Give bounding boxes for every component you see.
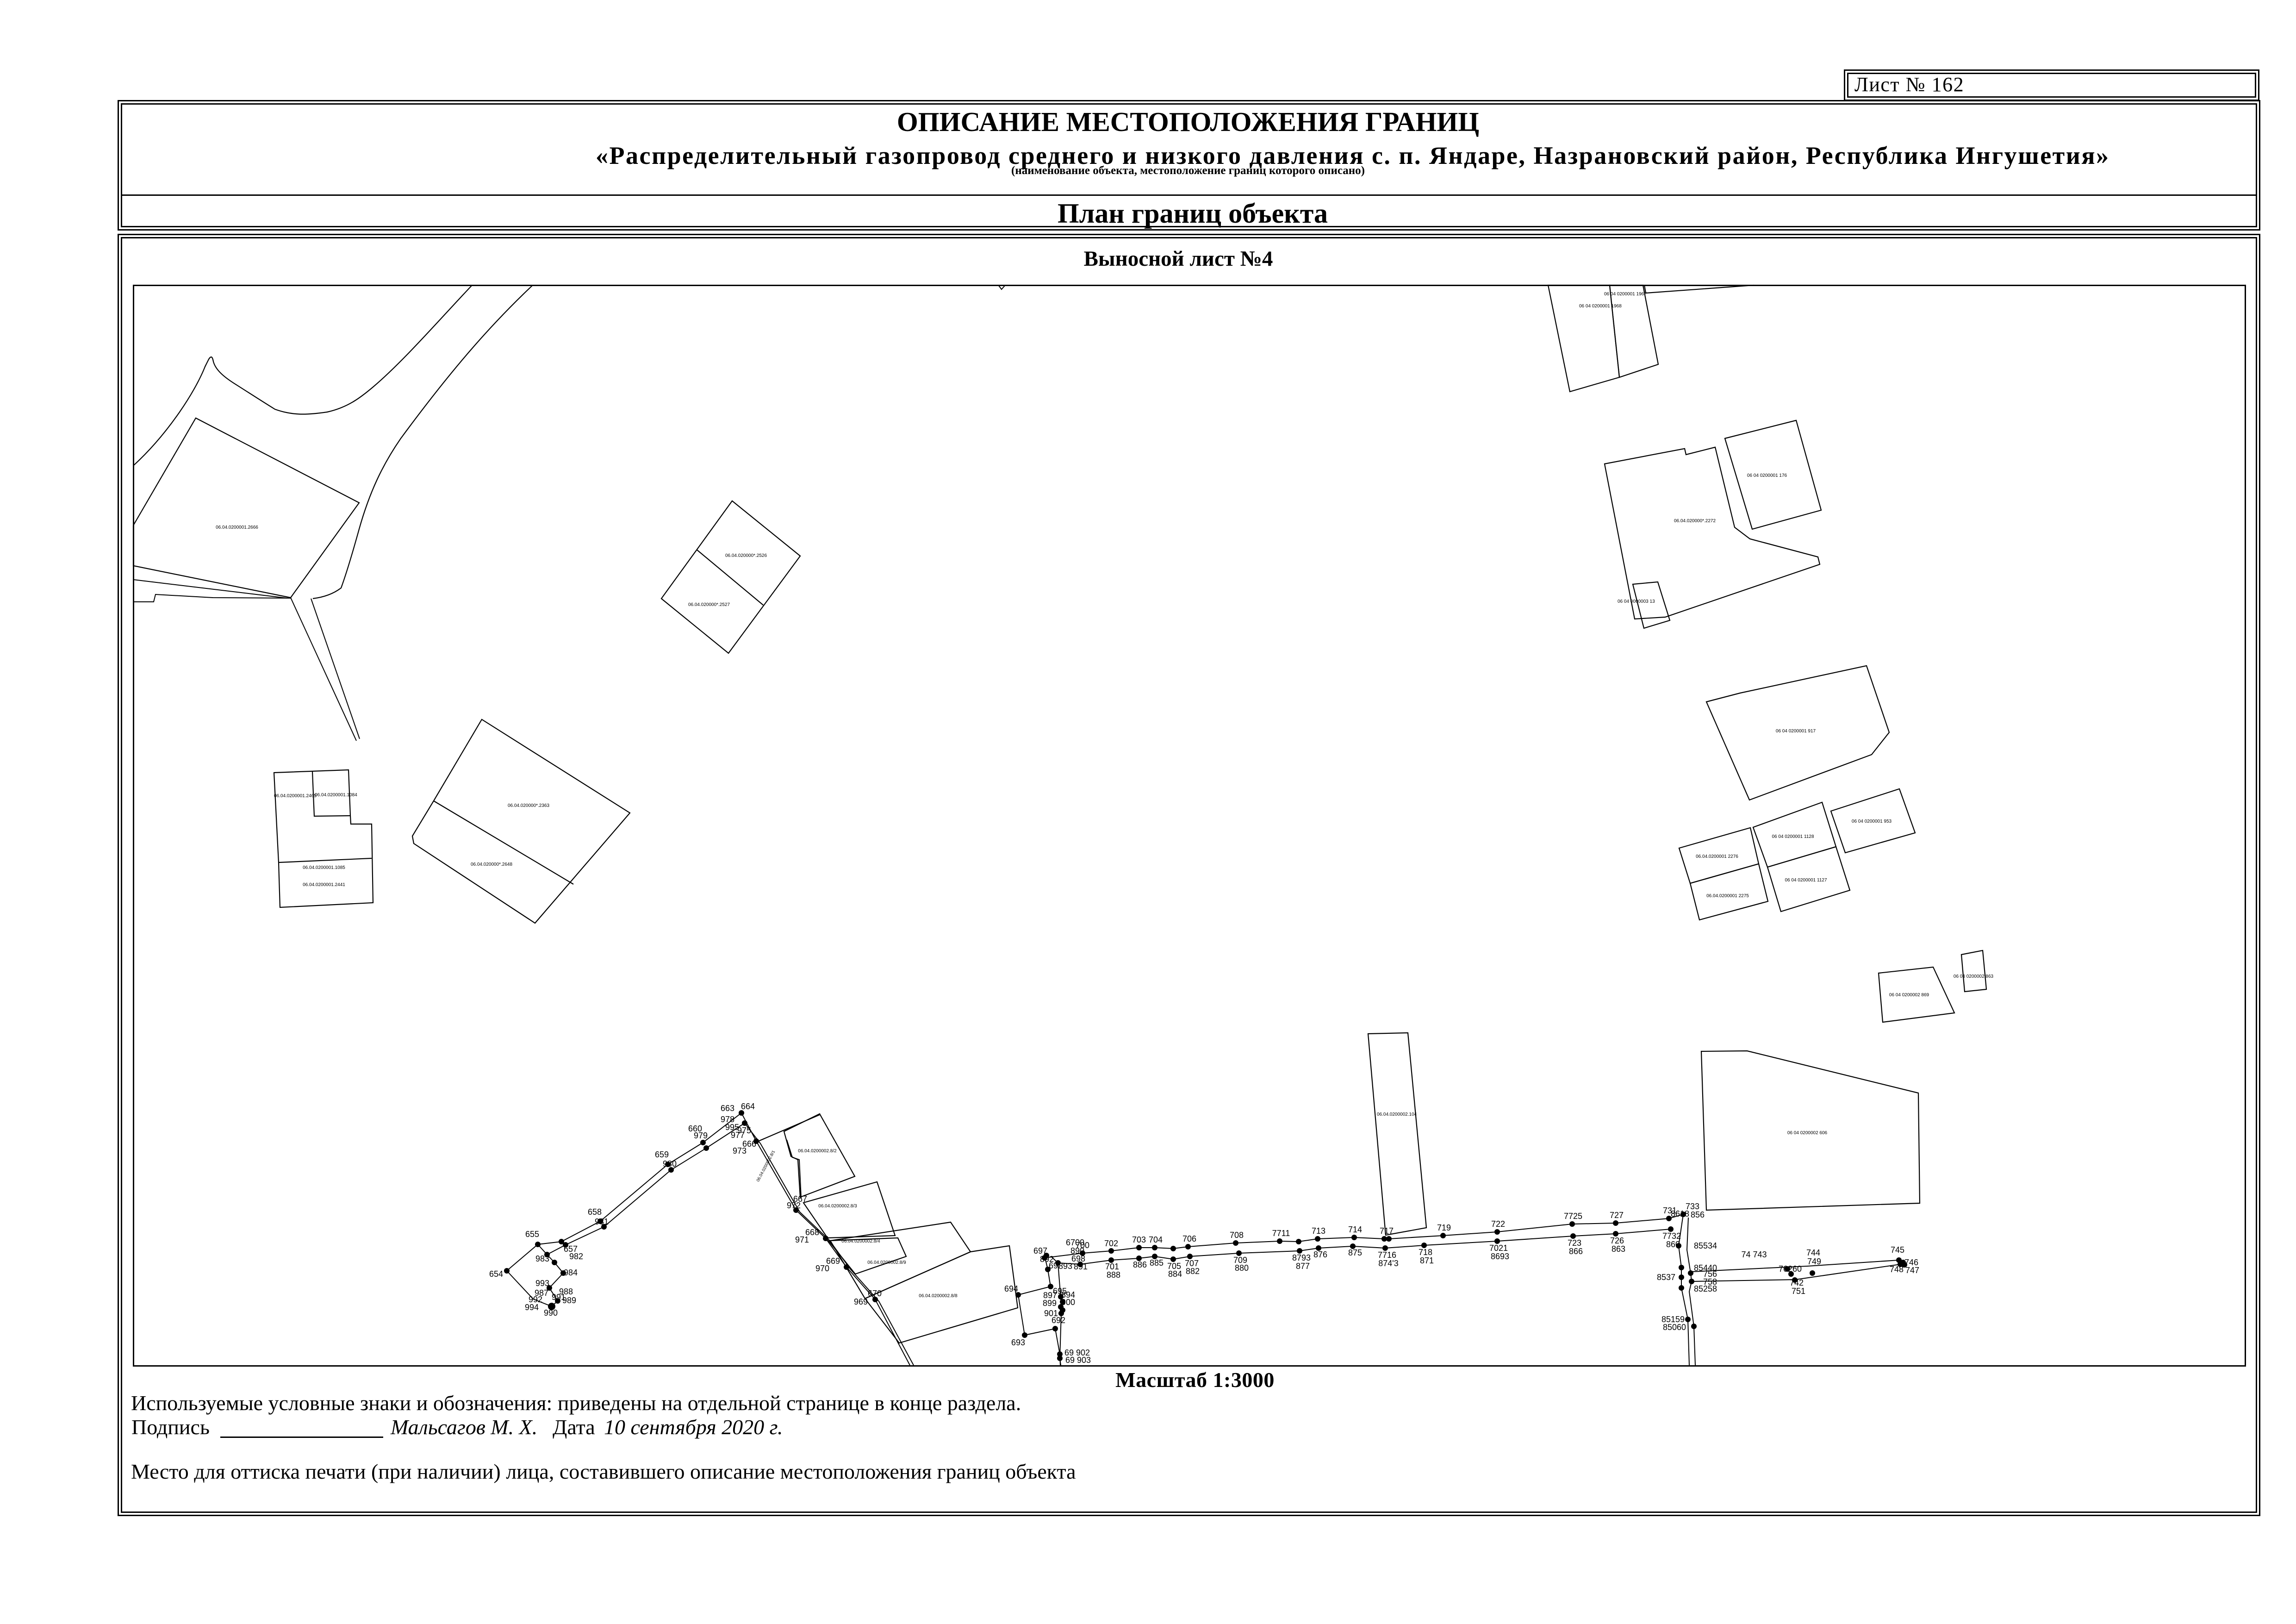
svg-text:722: 722 bbox=[1491, 1219, 1505, 1229]
svg-text:984: 984 bbox=[564, 1268, 578, 1277]
svg-text:744: 744 bbox=[1806, 1248, 1820, 1257]
svg-text:06.04.0200001.1084: 06.04.0200001.1084 bbox=[315, 793, 357, 798]
svg-text:69 903: 69 903 bbox=[1065, 1355, 1091, 1365]
svg-text:06 04 0000003 13: 06 04 0000003 13 bbox=[1618, 599, 1655, 604]
svg-text:751: 751 bbox=[1792, 1287, 1805, 1296]
svg-text:6700: 6700 bbox=[1066, 1238, 1084, 1247]
svg-text:886: 886 bbox=[1133, 1260, 1147, 1269]
svg-text:06.04.0200002.8/4: 06.04.0200002.8/4 bbox=[841, 1239, 880, 1244]
svg-text:06 04 0200001 953: 06 04 0200001 953 bbox=[1852, 819, 1892, 824]
svg-text:717: 717 bbox=[1380, 1226, 1394, 1236]
svg-text:664: 664 bbox=[741, 1102, 755, 1111]
svg-text:7732: 7732 bbox=[1662, 1231, 1681, 1241]
svg-text:748: 748 bbox=[1890, 1265, 1904, 1274]
svg-text:06.04.0200002.8/3: 06.04.0200002.8/3 bbox=[818, 1204, 857, 1209]
svg-text:719: 719 bbox=[1437, 1223, 1451, 1232]
svg-text:06 04 0200001 1127: 06 04 0200001 1127 bbox=[1785, 878, 1827, 883]
svg-text:06.04.0200002.8/9: 06.04.0200002.8/9 bbox=[867, 1260, 906, 1265]
svg-text:891: 891 bbox=[1074, 1262, 1088, 1271]
svg-text:06.04.0200001 2276: 06.04.0200001 2276 bbox=[1696, 854, 1738, 859]
svg-text:8793: 8793 bbox=[1292, 1253, 1311, 1262]
svg-text:06 04 0200001 917: 06 04 0200001 917 bbox=[1776, 729, 1816, 734]
svg-text:663: 663 bbox=[721, 1104, 734, 1113]
svg-text:7725: 7725 bbox=[1564, 1212, 1582, 1221]
svg-text:06.04.0200001.2441: 06.04.0200001.2441 bbox=[303, 882, 345, 887]
svg-text:06.04.0200002.8/2: 06.04.0200002.8/2 bbox=[798, 1149, 837, 1154]
svg-text:983: 983 bbox=[535, 1254, 549, 1263]
svg-text:977: 977 bbox=[731, 1131, 745, 1140]
svg-text:06.04.0200001 2275: 06.04.0200001 2275 bbox=[1706, 893, 1749, 899]
svg-text:866: 866 bbox=[1569, 1247, 1583, 1256]
svg-text:701: 701 bbox=[1105, 1262, 1119, 1271]
svg-text:06.04.020000*.2526: 06.04.020000*.2526 bbox=[725, 553, 767, 558]
svg-text:670: 670 bbox=[868, 1289, 882, 1298]
svg-text:973: 973 bbox=[733, 1146, 747, 1156]
svg-text:06.04.0200001.2465: 06.04.0200001.2465 bbox=[274, 793, 317, 799]
svg-text:8537: 8537 bbox=[1657, 1273, 1675, 1282]
svg-text:991: 991 bbox=[552, 1293, 566, 1302]
svg-text:726: 726 bbox=[1610, 1236, 1624, 1245]
svg-text:745: 745 bbox=[1891, 1245, 1904, 1255]
svg-text:982: 982 bbox=[569, 1252, 583, 1261]
svg-text:06.04.020000*.2648: 06.04.020000*.2648 bbox=[471, 862, 513, 867]
svg-text:742: 742 bbox=[1790, 1278, 1804, 1287]
svg-text:981: 981 bbox=[595, 1217, 609, 1226]
svg-text:69: 69 bbox=[1049, 1261, 1058, 1270]
svg-text:888: 888 bbox=[1107, 1270, 1120, 1280]
svg-text:74 743: 74 743 bbox=[1741, 1250, 1767, 1259]
svg-text:856: 856 bbox=[1691, 1210, 1705, 1219]
svg-text:8618: 8618 bbox=[1671, 1209, 1689, 1218]
svg-text:06.04.0200002.104: 06.04.0200002.104 bbox=[1377, 1112, 1417, 1117]
svg-text:06.04.0200001.2666: 06.04.0200001.2666 bbox=[216, 525, 258, 530]
svg-text:8693: 8693 bbox=[1491, 1252, 1509, 1261]
svg-text:713: 713 bbox=[1312, 1226, 1325, 1236]
svg-text:714: 714 bbox=[1348, 1225, 1362, 1234]
svg-text:871: 871 bbox=[1420, 1256, 1434, 1265]
svg-text:06 04 0200002 869: 06 04 0200002 869 bbox=[1889, 993, 1929, 998]
svg-text:06 04 0200001 1128: 06 04 0200001 1128 bbox=[1772, 834, 1814, 839]
svg-text:718: 718 bbox=[1419, 1248, 1432, 1257]
svg-text:706: 706 bbox=[1182, 1234, 1196, 1243]
svg-text:694: 694 bbox=[1004, 1284, 1018, 1293]
svg-text:880: 880 bbox=[1235, 1263, 1249, 1273]
svg-text:971: 971 bbox=[795, 1235, 809, 1244]
svg-text:7711: 7711 bbox=[1272, 1229, 1290, 1238]
svg-text:06 04 0200002 863: 06 04 0200002 863 bbox=[1954, 974, 1994, 979]
svg-text:876: 876 bbox=[1313, 1250, 1327, 1259]
svg-text:06 04 0200001 176: 06 04 0200001 176 bbox=[1747, 473, 1787, 478]
svg-text:969: 969 bbox=[854, 1297, 868, 1306]
svg-text:884: 884 bbox=[1168, 1269, 1182, 1279]
svg-text:06 04 0200001 1967: 06 04 0200001 1967 bbox=[1604, 292, 1647, 297]
svg-text:893: 893 bbox=[1058, 1262, 1072, 1271]
svg-text:06 04 0200001 1968: 06 04 0200001 1968 bbox=[1579, 304, 1622, 309]
svg-text:900: 900 bbox=[1061, 1298, 1075, 1307]
svg-text:972: 972 bbox=[787, 1201, 801, 1210]
svg-text:882: 882 bbox=[1186, 1267, 1200, 1276]
svg-text:85258: 85258 bbox=[1694, 1284, 1717, 1293]
svg-text:7021: 7021 bbox=[1489, 1243, 1508, 1253]
svg-text:692: 692 bbox=[1052, 1316, 1065, 1325]
svg-text:990: 990 bbox=[544, 1308, 558, 1318]
svg-text:659: 659 bbox=[655, 1150, 669, 1159]
svg-text:874'3: 874'3 bbox=[1378, 1259, 1398, 1268]
svg-text:979: 979 bbox=[694, 1131, 708, 1140]
svg-text:7716: 7716 bbox=[1378, 1250, 1396, 1260]
svg-text:06.04.020000*.2363: 06.04.020000*.2363 bbox=[508, 803, 550, 808]
svg-text:747: 747 bbox=[1905, 1266, 1919, 1275]
svg-text:06.04.020000*.2527: 06.04.020000*.2527 bbox=[688, 602, 730, 607]
svg-text:06.04.0200001.1085: 06.04.0200001.1085 bbox=[303, 865, 345, 870]
svg-text:654: 654 bbox=[489, 1269, 503, 1279]
svg-text:702: 702 bbox=[1104, 1239, 1118, 1248]
svg-text:727: 727 bbox=[1610, 1211, 1624, 1220]
svg-text:708: 708 bbox=[1230, 1230, 1244, 1240]
svg-text:749: 749 bbox=[1807, 1257, 1821, 1266]
svg-text:863: 863 bbox=[1612, 1244, 1625, 1254]
svg-text:06.04.0200002.8/8: 06.04.0200002.8/8 bbox=[919, 1293, 958, 1299]
svg-text:06.04.020000*.2272: 06.04.020000*.2272 bbox=[1674, 518, 1716, 524]
svg-text:980: 980 bbox=[663, 1159, 677, 1168]
svg-text:655: 655 bbox=[525, 1230, 539, 1239]
svg-text:875: 875 bbox=[1348, 1248, 1362, 1257]
svg-text:885: 885 bbox=[1150, 1258, 1164, 1268]
svg-text:899: 899 bbox=[1043, 1299, 1057, 1308]
svg-text:994: 994 bbox=[525, 1303, 539, 1312]
svg-text:693: 693 bbox=[1011, 1338, 1025, 1347]
svg-text:970: 970 bbox=[815, 1264, 829, 1273]
svg-text:877: 877 bbox=[1296, 1262, 1310, 1271]
svg-text:698: 698 bbox=[1071, 1254, 1085, 1263]
svg-text:76260: 76260 bbox=[1779, 1264, 1802, 1274]
svg-text:723: 723 bbox=[1568, 1238, 1581, 1248]
svg-text:703: 703 bbox=[1132, 1235, 1146, 1244]
svg-text:993: 993 bbox=[535, 1279, 549, 1288]
svg-text:658: 658 bbox=[588, 1207, 602, 1217]
svg-text:85060: 85060 bbox=[1663, 1323, 1686, 1332]
svg-text:704: 704 bbox=[1149, 1235, 1163, 1244]
svg-text:06 04 0200002 606: 06 04 0200002 606 bbox=[1787, 1131, 1828, 1136]
svg-text:85534: 85534 bbox=[1694, 1241, 1717, 1250]
